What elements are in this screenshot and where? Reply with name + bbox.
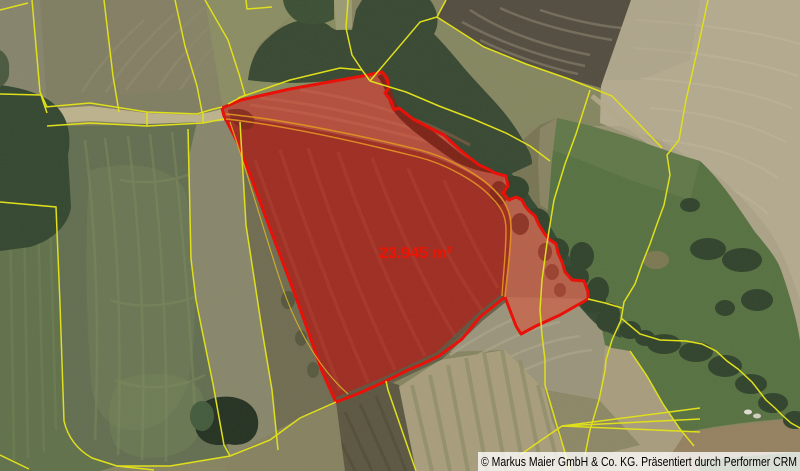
- svg-text:23.945 m²: 23.945 m²: [379, 245, 452, 262]
- svg-text:© Markus Maier GmbH & Co. KG.: © Markus Maier GmbH & Co. KG. Präsentier…: [481, 454, 797, 469]
